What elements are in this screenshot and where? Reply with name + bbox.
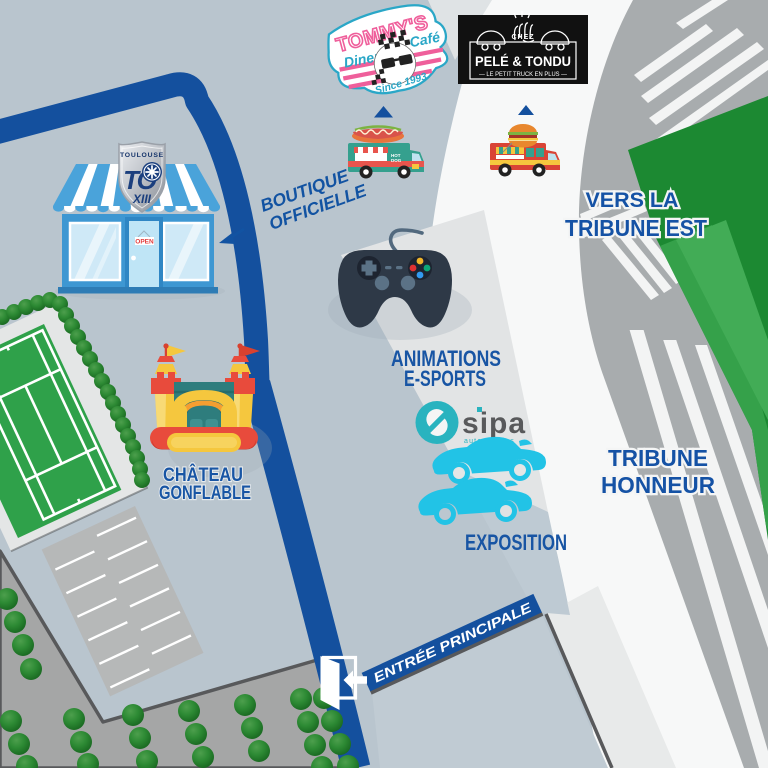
svg-text:TRIBUNE: TRIBUNE [608, 445, 708, 471]
svg-text:XIII: XIII [132, 192, 152, 206]
svg-text:DOG: DOG [391, 158, 402, 163]
svg-text:GONFLABLE: GONFLABLE [159, 482, 251, 504]
svg-text:sipa: sipa [462, 407, 526, 440]
svg-text:CHEZ: CHEZ [511, 34, 534, 41]
svg-text:OPEN: OPEN [135, 239, 154, 246]
svg-text:HONNEUR: HONNEUR [601, 472, 715, 498]
svg-text:VERS LA: VERS LA [586, 189, 679, 212]
svg-text:— LE PETIT TRUCK EN PLUS —: — LE PETIT TRUCK EN PLUS — [479, 72, 567, 78]
svg-text:TOULOUSE: TOULOUSE [120, 152, 164, 159]
svg-text:EXPOSITION: EXPOSITION [465, 530, 567, 555]
svg-text:PELÉ & TONDU: PELÉ & TONDU [475, 53, 571, 69]
svg-text:TRIBUNE EST: TRIBUNE EST [565, 215, 707, 241]
svg-text:E-SPORTS: E-SPORTS [404, 366, 486, 391]
